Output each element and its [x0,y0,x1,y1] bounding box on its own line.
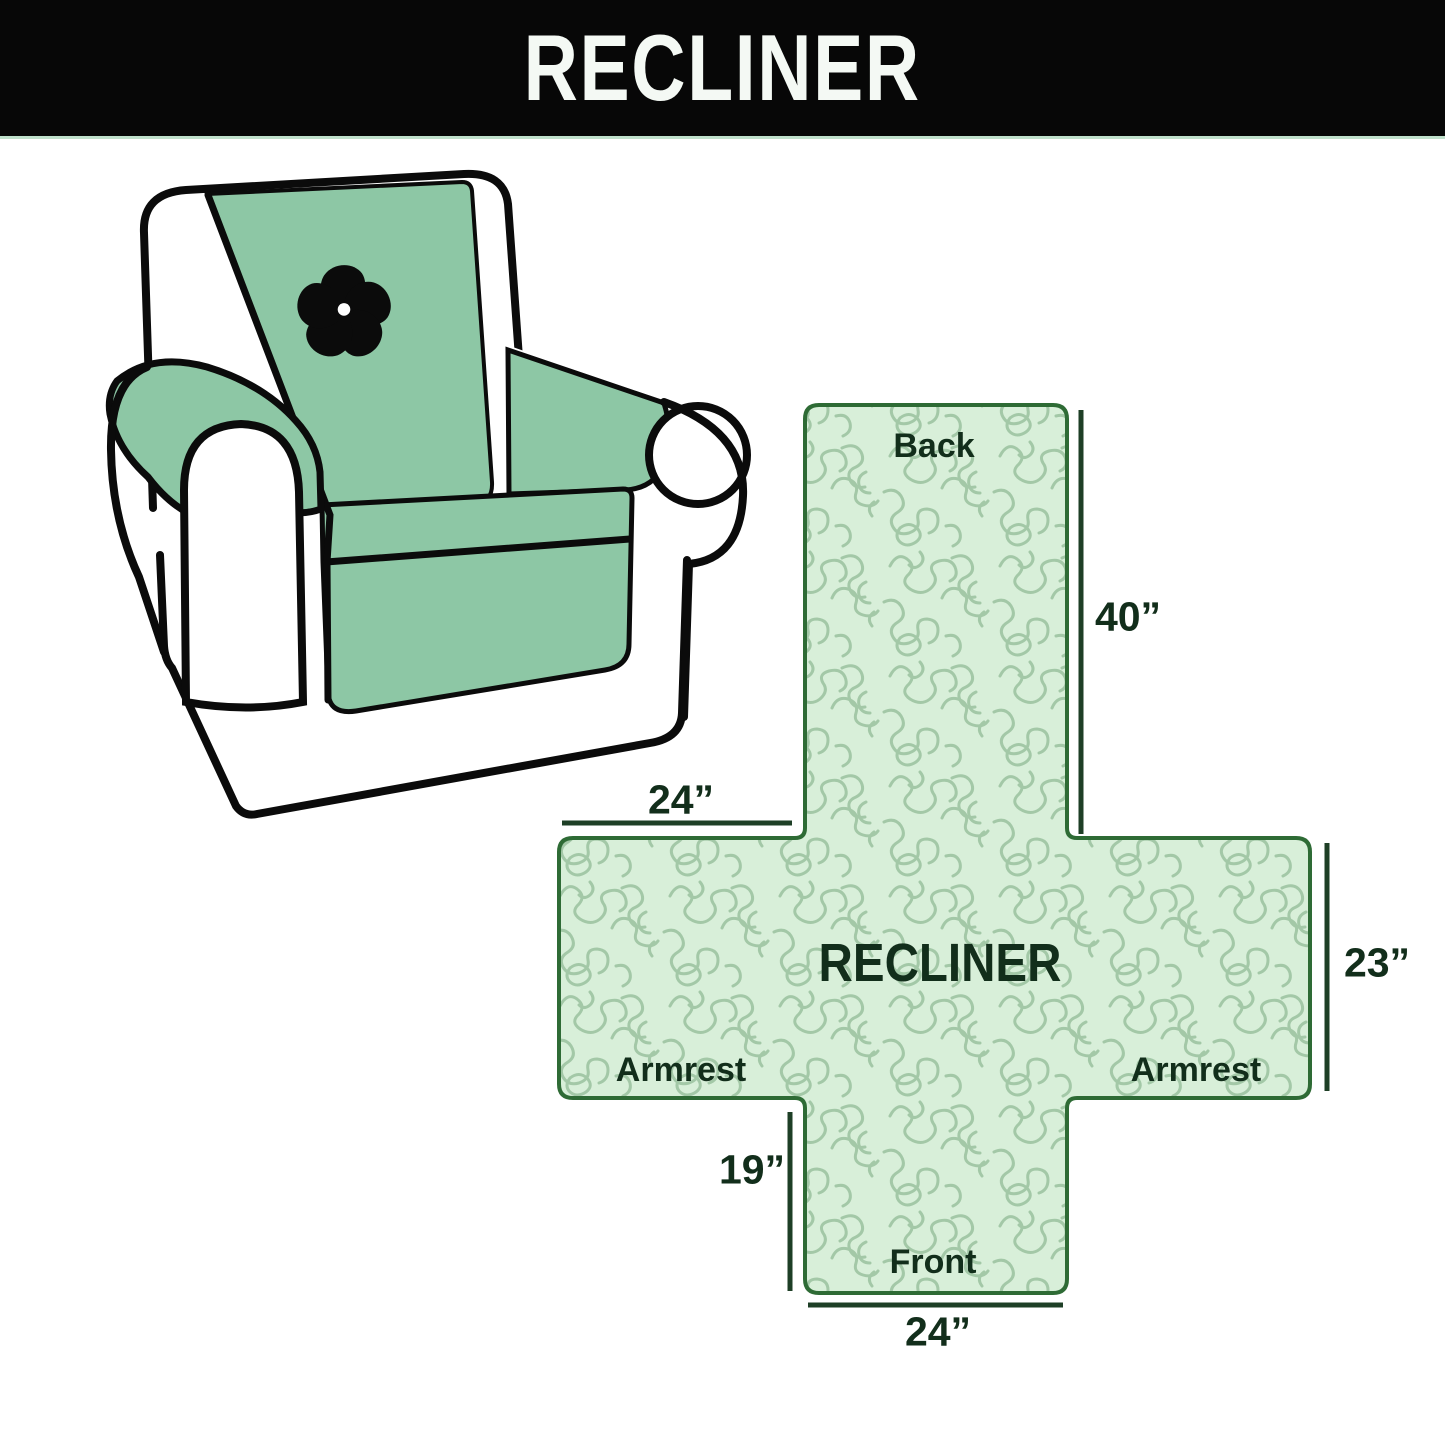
back-section-label: Back [893,429,974,463]
armrest-left-label: Armrest [616,1053,746,1087]
chair-left-arm-roll [184,424,303,708]
chair-right-arm-cover [508,350,669,494]
armrest-right-label: Armrest [1131,1053,1261,1087]
product-poster: RECLINER [0,0,1445,1445]
chair-illustration [109,174,747,815]
illustration-canvas [0,0,1445,1445]
back-height-dimension: 40” [1095,597,1161,638]
top-width-dimension: 24” [648,780,714,821]
front-width-dimension: 24” [905,1312,971,1353]
diagram-center-label: RECLINER [819,936,1062,990]
front-height-dimension: 19” [719,1150,785,1191]
front-section-label: Front [890,1245,977,1279]
side-height-dimension: 23” [1344,943,1410,984]
